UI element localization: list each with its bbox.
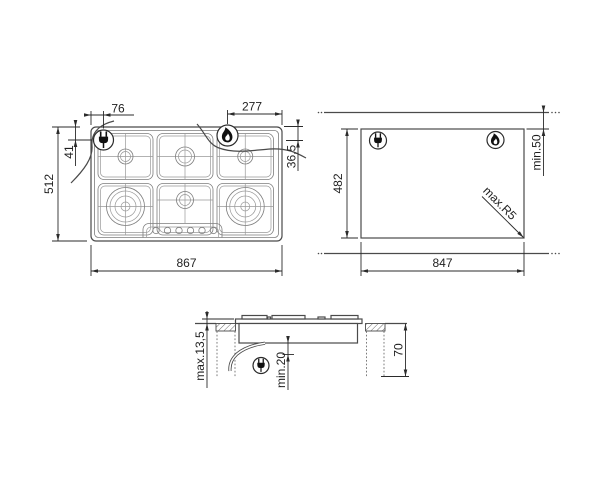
- dim-plug-from-left: 76: [84, 102, 134, 129]
- rear-clearance-label: min.50: [530, 134, 544, 170]
- plan-view: 76 277 41 36,5: [42, 100, 306, 277]
- hob-body: [239, 324, 358, 344]
- hob-profile: [236, 316, 363, 344]
- dim-cutout-depth: 482: [331, 129, 358, 238]
- dim-clearance-below: min.20: [274, 336, 294, 390]
- hob-depth-label: 512: [42, 174, 56, 194]
- plug-from-top-label: 41: [62, 145, 76, 159]
- diagram-svg: 76 277 41 36,5: [0, 0, 600, 480]
- cutout-view: 482 847 min.50 max.R5: [318, 106, 560, 277]
- worktop-section-left: [216, 324, 236, 332]
- flame-from-top-label: 36,5: [285, 144, 299, 168]
- cutout-width-label: 847: [432, 256, 452, 270]
- cutout-depth-label: 482: [331, 173, 345, 193]
- installation-diagram: 76 277 41 36,5: [0, 0, 600, 480]
- clearance-below-label: min.20: [274, 352, 288, 388]
- hob-width-label: 867: [176, 256, 196, 270]
- install-depth-label: 70: [392, 343, 406, 357]
- dim-cutout-width: 847: [361, 242, 524, 276]
- worktop-section-right: [366, 324, 386, 332]
- plug-from-left-label: 76: [111, 102, 125, 116]
- dim-rear-clearance: min.50: [527, 106, 550, 177]
- dim-height-above-worktop: max.13,5: [193, 311, 234, 388]
- height-above-worktop-label: max.13,5: [193, 331, 207, 381]
- hob-top-plate: [236, 319, 363, 324]
- side-view: max.13,5 min.20 70: [193, 311, 409, 390]
- dim-hob-width: 867: [91, 245, 282, 276]
- dim-flame-from-top: 36,5: [284, 120, 303, 172]
- dim-hob-depth: 512: [42, 127, 87, 241]
- dim-install-depth: 70: [381, 324, 409, 377]
- flame-from-right-label: 277: [242, 100, 262, 114]
- dim-flame-from-right: 277: [228, 100, 283, 126]
